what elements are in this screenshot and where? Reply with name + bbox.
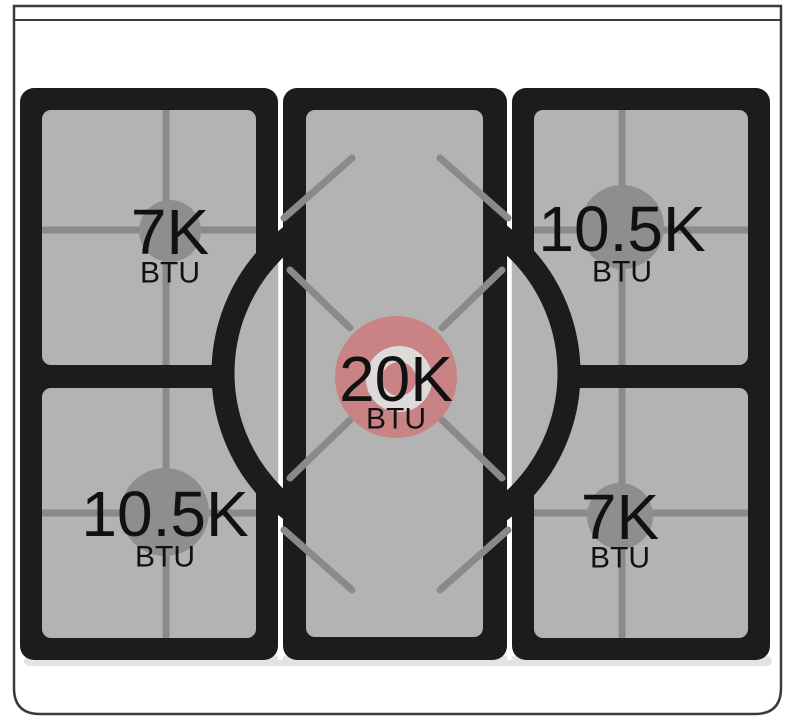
- burner-btu-unit: BTU: [140, 257, 200, 290]
- burner-bottom-right: 7K BTU: [581, 481, 659, 575]
- burner-btu-unit: BTU: [366, 403, 426, 436]
- burner-top-left: 7K BTU: [131, 196, 209, 290]
- burner-btu-unit: BTU: [135, 541, 195, 574]
- burner-btu-value: 10.5K: [81, 478, 248, 550]
- burner-center: 20K BTU: [335, 316, 457, 438]
- cooktop-diagram: 7K BTU 10.5K BTU 20K BTU 10.5K BTU 7K BT…: [0, 0, 796, 728]
- burner-btu-value: 10.5K: [538, 193, 705, 265]
- burner-btu-unit: BTU: [590, 542, 650, 575]
- burner-btu-unit: BTU: [592, 256, 652, 289]
